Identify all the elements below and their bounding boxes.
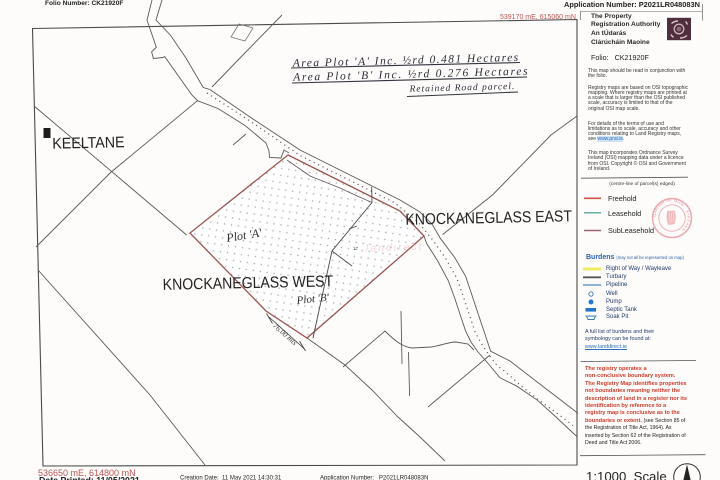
svg-text:KNOCKANEGLASS WEST: KNOCKANEGLASS WEST bbox=[163, 273, 334, 295]
svg-text:KEELTANE: KEELTANE bbox=[52, 135, 125, 153]
svg-text:landirect: landirect bbox=[366, 241, 424, 255]
svg-text:17: 17 bbox=[353, 246, 359, 251]
svg-text:Folio Number: CK21920F: Folio Number: CK21920F bbox=[45, 0, 123, 7]
svg-text:KNOCKANEGLASS EAST: KNOCKANEGLASS EAST bbox=[405, 207, 572, 229]
svg-text:Date Printed: 11/05/2021: Date Printed: 11/05/2021 bbox=[39, 476, 140, 480]
svg-text:Application Number: P2021LR048: Application Number: P2021LR048083N bbox=[564, 0, 700, 9]
svg-text:Application Number: P2021LR0: Application Number: P2021LR048083N bbox=[320, 476, 428, 480]
svg-text:539170 mE, 615060 mN: 539170 mE, 615060 mN bbox=[500, 14, 576, 21]
svg-text:Creation Date: 11 May 2021 14: Creation Date: 11 May 2021 14:30:31 bbox=[180, 476, 282, 480]
